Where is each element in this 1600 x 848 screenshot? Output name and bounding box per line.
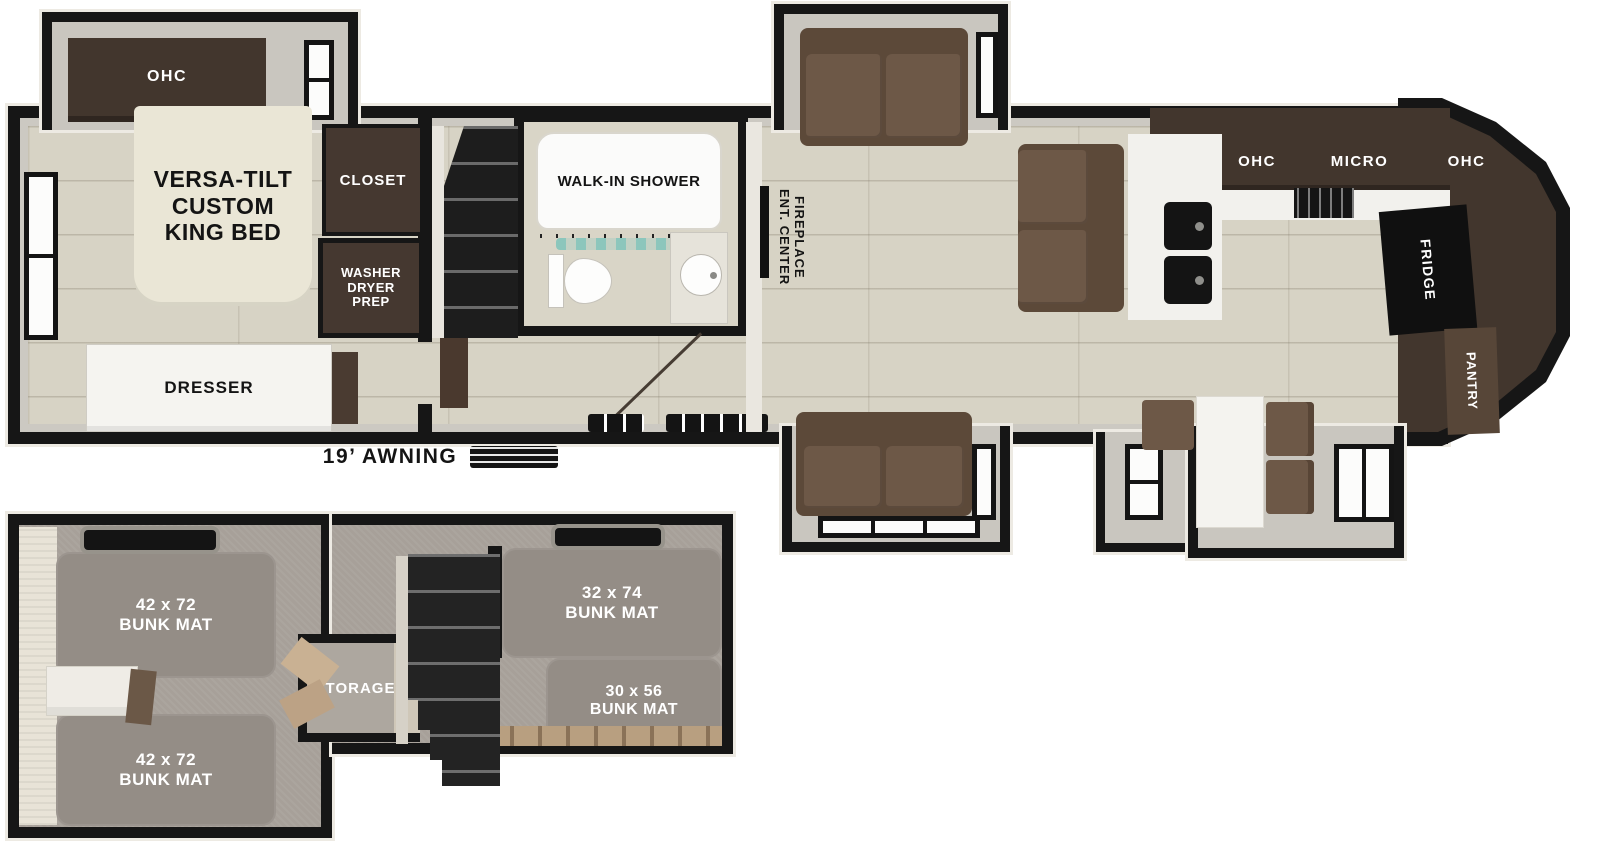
dinette-return-wall [1096, 432, 1188, 552]
washer-dryer-prep: WASHER DRYER PREP [318, 238, 424, 338]
fridge-label: FRIDGE [1417, 238, 1438, 301]
dinette-wall-window [1125, 444, 1163, 520]
bunk-mat-rear-top-label: 32 x 74 BUNK MAT [565, 583, 658, 622]
sofa-slide-rear-window [818, 516, 980, 538]
dinette-chair-2 [1266, 460, 1314, 514]
bunk-mat-front-bottom-label: 42 x 72 BUNK MAT [119, 750, 212, 789]
fridge: FRIDGE [1379, 204, 1477, 335]
kitchen-ohc-left-label: OHC [1238, 153, 1276, 170]
bunk-mat-rear-bottom-label: 30 x 56 BUNK MAT [590, 683, 678, 720]
pantry-label: PANTRY [1463, 352, 1480, 410]
pantry: PANTRY [1444, 327, 1500, 435]
rv-floorplan: OHC VERSA-TILT CUSTOM KING BED CLOSET WA… [0, 0, 1600, 848]
sink-faucet [710, 272, 717, 279]
dinette-slide-window [1334, 444, 1394, 522]
kitchen-ohc-left-box: OHC [1212, 148, 1302, 174]
bedroom-window [24, 172, 58, 340]
bunk-mat-rear-top: 32 x 74 BUNK MAT [502, 548, 722, 658]
closet-label: CLOSET [340, 172, 407, 189]
fireplace [760, 186, 769, 278]
dinette-chair-1 [1266, 402, 1314, 456]
loveseat [1018, 144, 1124, 312]
kitchen-sink-basin-2 [1164, 256, 1212, 304]
king-bed-label: VERSA-TILT CUSTOM KING BED [154, 166, 293, 245]
bedroom-ohc-label: OHC [147, 68, 187, 86]
loft-stairs-wall [432, 126, 444, 338]
washer-dryer-prep-label: WASHER DRYER PREP [341, 266, 401, 311]
loft-railing [482, 726, 722, 746]
sofa-slide-top-window [976, 32, 998, 118]
closet: CLOSET [322, 124, 424, 236]
bunk-mat-front-top: 42 x 72 BUNK MAT [56, 552, 276, 678]
fireplace-label-box: ENT. CENTER FIREPLACE [772, 142, 810, 332]
skylight-front [80, 526, 220, 554]
dresser-label: DRESSER [164, 378, 253, 398]
walk-in-shower: WALK-IN SHOWER [536, 132, 722, 230]
toilet-bowl [564, 258, 612, 304]
toilet-tank [548, 254, 564, 308]
kitchen-micro-label: MICRO [1331, 153, 1389, 170]
lower-stairs-wall [396, 556, 408, 744]
kitchen-micro-box: MICRO [1312, 148, 1407, 174]
bunk-mat-front-bottom: 42 x 72 BUNK MAT [56, 714, 276, 826]
bedroom-nightstand [332, 352, 358, 424]
bedroom-wall-stub [418, 404, 432, 434]
bathroom: WALK-IN SHOWER [514, 112, 748, 336]
slide-loveseat [796, 412, 972, 516]
walk-in-shower-label: WALK-IN SHOWER [558, 173, 701, 190]
loft-stairs-landing [440, 338, 468, 408]
king-bed: VERSA-TILT CUSTOM KING BED [134, 106, 312, 306]
tri-fold-sofa [800, 28, 968, 146]
awning-label: 19’ AWNING [323, 445, 457, 469]
dinette-bench-left [1142, 400, 1194, 450]
dinette-table [1196, 396, 1264, 528]
fireplace-label: ENT. CENTER FIREPLACE [776, 189, 806, 285]
cooktop [1288, 182, 1360, 224]
bunk-mat-front-top-label: 42 x 72 BUNK MAT [119, 595, 212, 634]
sofa-slide-bottom-window [972, 444, 996, 520]
loft-stairs [444, 126, 518, 338]
step-well-left [588, 414, 644, 432]
kitchen-ohc-right-label: OHC [1448, 153, 1486, 170]
kitchen-sink-basin-1 [1164, 202, 1212, 250]
dresser: DRESSER [86, 344, 332, 432]
kitchen-ohc-right-box: OHC [1424, 148, 1509, 174]
skylight-rear [551, 524, 665, 550]
bunk-nightstand [46, 666, 138, 716]
entry-step [470, 446, 558, 468]
